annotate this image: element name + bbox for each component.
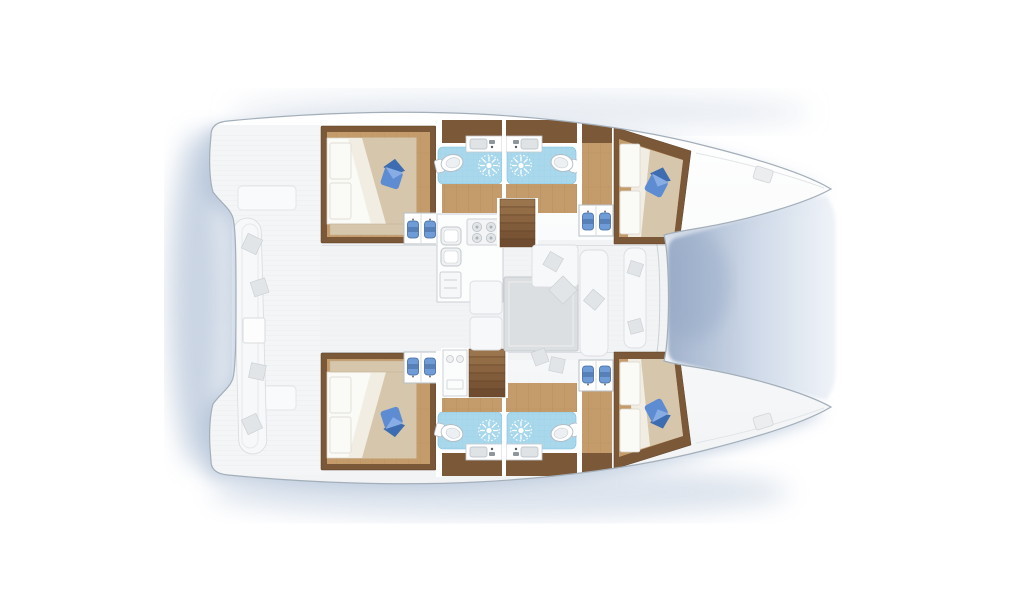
stairs-starboard-hull	[441, 348, 508, 398]
cockpit-pillow	[248, 363, 266, 381]
vanity-sink	[466, 136, 502, 152]
stove	[467, 219, 501, 245]
wardrobe	[404, 213, 438, 244]
bed-pillow	[620, 144, 640, 187]
saloon-seat	[470, 317, 502, 350]
aft-locker-port	[238, 186, 296, 210]
bed-pillow	[620, 191, 640, 234]
saloon-pillow	[549, 357, 566, 374]
bed-pillow	[330, 143, 351, 179]
cockpit-deck-planking	[212, 132, 322, 466]
stairs-port-hull	[497, 198, 538, 248]
catamaran-floorplan-page	[0, 0, 1024, 600]
bed-foot-bench	[330, 224, 408, 235]
saloon-seat	[470, 281, 502, 314]
bed-pillow	[330, 183, 351, 219]
saloon-pillow	[628, 318, 644, 334]
wardrobe	[579, 205, 613, 236]
galley-cabinet	[440, 272, 461, 298]
cabin-aft	[321, 126, 438, 244]
catamaran-floorplan	[0, 0, 1024, 600]
forward-passage	[579, 121, 613, 236]
cockpit-table	[243, 318, 265, 343]
vanity-sink	[506, 136, 542, 152]
